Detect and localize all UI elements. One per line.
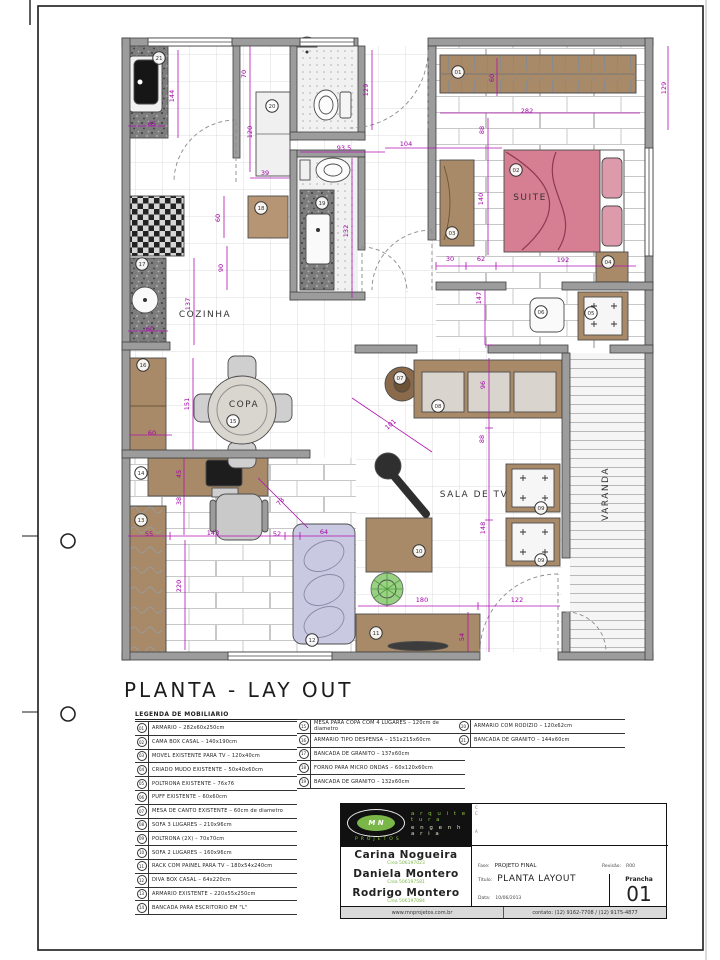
- dimension-label: 54: [458, 633, 466, 641]
- revisao-label: Revisão:: [602, 864, 621, 869]
- dimension-label: 60: [146, 325, 154, 333]
- svg-text:03: 03: [449, 231, 456, 237]
- legend-row: 04CRIADO MUDO EXISTENTE – 50x40x60cm: [135, 763, 297, 777]
- dimension-label: 180: [416, 596, 428, 604]
- logo-mark: M N: [357, 815, 395, 831]
- dimension-label: 120: [246, 126, 254, 138]
- dimension-label: 55: [145, 530, 153, 538]
- title-block: M N a r q u i t e t u r a e n g e n h a …: [340, 803, 667, 919]
- svg-text:08: 08: [435, 404, 442, 410]
- dimension-label: 148: [479, 522, 487, 534]
- room-label: SALA DE TV: [440, 490, 508, 500]
- legend-row: 11RACK COM PAINEL PARA TV – 180x54x240cm: [135, 860, 297, 874]
- author: Carina Nogueira Crea 506197023: [341, 849, 471, 866]
- dimension-label: 151: [183, 398, 191, 410]
- logo-sub: PROJETOS: [355, 837, 402, 842]
- legend-row: 02CAMA BOX CASAL – 140x190cm: [135, 736, 297, 750]
- dimension-label: 64: [320, 528, 328, 536]
- legend-row: 09POLTRONA (2X) – 70x70cm: [135, 832, 297, 846]
- legend-row: 16ARMARIO TIPO DESPENSA – 151x215x60cm: [297, 734, 465, 748]
- item-marker: 01: [452, 66, 464, 78]
- item-marker: 18: [255, 202, 267, 214]
- footer-bar: www.mnprojetos.com.br contato: (12) 9162…: [341, 906, 666, 918]
- item-marker: 03: [446, 227, 458, 239]
- titulo-label: Título:: [478, 878, 492, 883]
- legend-row: 01ARMARIO – 282x60x250cm: [135, 722, 297, 736]
- legend-row: 20ARMARIO COM RODIZIO – 120x62cm: [457, 720, 625, 734]
- window: [228, 652, 332, 660]
- shelf-13: [126, 506, 166, 656]
- svg-text:16: 16: [140, 363, 147, 369]
- tv-unit-10: [366, 518, 432, 572]
- item-marker: 09: [535, 502, 547, 514]
- item-marker: 20: [266, 100, 278, 112]
- toilet-bath2: [300, 158, 350, 182]
- binder-hole: [61, 707, 75, 721]
- dimension-label: 220: [175, 580, 183, 592]
- item-marker: 16: [137, 359, 149, 371]
- item-marker: 05: [585, 307, 597, 319]
- item-marker: 08: [432, 400, 444, 412]
- client-line: A: [475, 830, 668, 834]
- item-marker: 06: [535, 306, 547, 318]
- svg-text:15: 15: [230, 419, 237, 425]
- cabinet-18: [248, 196, 288, 238]
- author: Rodrigo Montero Crea 506197084: [341, 887, 471, 904]
- dimension-label: 45: [175, 470, 183, 478]
- item-marker: 19: [316, 197, 328, 209]
- sheet-number-box: Prancha 01: [609, 874, 668, 908]
- svg-text:14: 14: [138, 471, 145, 477]
- dimension-label: 132: [342, 225, 350, 237]
- legend-row: 18FORNO PARA MICRO ONDAS – 60x120x60cm: [297, 761, 465, 775]
- fields: Fase: PROJETO FINAL Revisão: R00 Título:…: [471, 846, 668, 908]
- armchair-09b: [506, 518, 560, 566]
- svg-text:09: 09: [538, 558, 545, 564]
- item-marker: 04: [602, 256, 614, 268]
- svg-text:17: 17: [139, 262, 146, 268]
- closet-01: [440, 55, 636, 93]
- logo-ellipse: M N: [347, 809, 405, 837]
- room-label: VARANDA: [601, 467, 611, 521]
- revisao-value: R00: [626, 864, 635, 869]
- svg-text:05: 05: [588, 311, 595, 317]
- binder-hole: [61, 534, 75, 548]
- dimension-label: 104: [400, 140, 412, 148]
- legend-column-1: LEGENDA DE MOBILIARIO 01ARMARIO – 282x60…: [135, 711, 297, 915]
- window: [645, 148, 653, 256]
- svg-text:07: 07: [397, 376, 404, 382]
- svg-text:11: 11: [373, 631, 380, 637]
- titulo-value: PLANTA LAYOUT: [497, 874, 576, 884]
- dimension-label: 137: [184, 298, 192, 310]
- item-marker: 07: [394, 372, 406, 384]
- contact: contato: (12) 9162-7708 / (12) 9175-4877: [503, 907, 666, 918]
- author: Daniela Montero Crea 506197581: [341, 868, 471, 885]
- authors: Carina Nogueira Crea 506197023 Daniela M…: [341, 846, 471, 908]
- svg-text:02: 02: [513, 168, 520, 174]
- svg-text:18: 18: [258, 206, 265, 212]
- client-box: C C A: [471, 804, 668, 846]
- client-line: C: [475, 812, 668, 816]
- legend-row: 05POLTRONA EXISTENTE – 76x76: [135, 777, 297, 791]
- svg-text:09: 09: [538, 506, 545, 512]
- logo-line2: e n g e n h a r i a: [411, 825, 471, 837]
- item-marker: 13: [135, 514, 147, 526]
- item-marker: 11: [370, 627, 382, 639]
- legend-list-2: 15MESA PARA COPA COM 4 LUGARES – 120cm d…: [297, 719, 465, 789]
- room-label: COZINHA: [179, 310, 231, 320]
- dimension-label: 122: [511, 596, 523, 604]
- dimension-label: 96: [479, 381, 487, 389]
- dimension-label: 144: [168, 90, 176, 102]
- window: [300, 38, 354, 46]
- pantry-cabinet-16: [126, 358, 166, 454]
- svg-text:10: 10: [416, 549, 423, 555]
- dimension-label: 90: [217, 264, 225, 272]
- svg-text:01: 01: [455, 70, 462, 76]
- dimension-label: 147: [475, 292, 483, 304]
- dimension-label: 93.5: [337, 144, 351, 152]
- legend-row: 13ARMARIO EXISTENTE – 220x55x250cm: [135, 888, 297, 902]
- legend-column-2: 15MESA PARA COPA COM 4 LUGARES – 120cm d…: [297, 719, 465, 789]
- legend-row: 19BANCADA DE GRANITO – 132x60cm: [297, 775, 465, 789]
- dimension-label: 30: [446, 255, 454, 263]
- svg-text:12: 12: [309, 638, 316, 644]
- dimension-label: 129: [362, 84, 370, 96]
- dimension-label: 88: [478, 435, 486, 443]
- svg-text:20: 20: [269, 104, 276, 110]
- dimension-label: 88: [478, 126, 486, 134]
- room-label: SUITE: [513, 193, 547, 203]
- dimension-label: 52: [273, 530, 281, 538]
- dimension-label: 65: [148, 120, 156, 128]
- svg-text:13: 13: [138, 518, 145, 524]
- svg-text:19: 19: [319, 201, 326, 207]
- legend-row: 06PUFF EXISTENTE – 60x60cm: [135, 791, 297, 805]
- item-marker: 02: [510, 164, 522, 176]
- dimension-label: 62: [477, 255, 485, 263]
- dimension-label: 38: [175, 497, 183, 505]
- legend-row: 10SOFA 2 LUGARES – 160x96cm: [135, 846, 297, 860]
- legend-row: 15MESA PARA COPA COM 4 LUGARES – 120cm d…: [297, 720, 465, 734]
- room-label: COPA: [229, 400, 259, 410]
- dimension-label: 129: [660, 82, 668, 94]
- item-marker: 17: [136, 258, 148, 270]
- legend-title: LEGENDA DE MOBILIARIO: [135, 711, 297, 720]
- item-marker: 14: [135, 467, 147, 479]
- dimension-label: 60: [488, 74, 496, 82]
- legend-row: 17BANCADA DE GRANITO – 137x60cm: [297, 748, 465, 762]
- sheet: 144657012012912993.510428288601403062192…: [0, 0, 720, 960]
- chaise-12: [293, 524, 355, 644]
- legend-row: 08SOFA 3 LUGARES – 210x96cm: [135, 819, 297, 833]
- client-line: C: [475, 806, 668, 810]
- legend-column-3: 20ARMARIO COM RODIZIO – 120x62cm21BANCAD…: [457, 719, 625, 748]
- dimension-label: 140: [477, 193, 485, 205]
- legend-row: 21BANCADA DE GRANITO – 144x60cm: [457, 734, 625, 748]
- website: www.mnprojetos.com.br: [341, 907, 503, 918]
- armchair-09a: [506, 464, 560, 512]
- logo-line1: a r q u i t e t u r a: [411, 811, 471, 823]
- legend-row: 12DIVA BOX CASAL – 64x220cm: [135, 874, 297, 888]
- prancha-value: 01: [610, 883, 668, 905]
- svg-text:04: 04: [605, 260, 612, 266]
- stove-17: [124, 196, 184, 256]
- dimension-label: 282: [521, 107, 533, 115]
- item-marker: 15: [227, 415, 239, 427]
- toilet-bath1: [314, 90, 351, 120]
- page-title: PLANTA - LAY OUT: [124, 678, 353, 702]
- svg-text:21: 21: [156, 56, 163, 62]
- item-marker: 10: [413, 545, 425, 557]
- dimension-label: 60: [214, 214, 222, 222]
- company-logo: M N a r q u i t e t u r a e n g e n h a …: [341, 804, 471, 846]
- legend-row: 03MOVEL EXISTENTE PARA TV – 120x40cm: [135, 750, 297, 764]
- legend-list-1: 01ARMARIO – 282x60x250cm02CAMA BOX CASAL…: [135, 721, 297, 915]
- item-marker: 09: [535, 554, 547, 566]
- window: [148, 38, 232, 46]
- dimension-label: 143: [207, 529, 219, 537]
- item-marker: 12: [306, 634, 318, 646]
- dimension-label: 60: [148, 429, 156, 437]
- dimension-label: 39: [261, 169, 269, 177]
- legend-row: 07MESA DE CANTO EXISTENTE – 60cm de diam…: [135, 805, 297, 819]
- dimension-label: 70: [240, 70, 248, 78]
- legend-row: 14BANCADA PARA ESCRITORIO EM "L": [135, 901, 297, 915]
- legend-list-3: 20ARMARIO COM RODIZIO – 120x62cm21BANCAD…: [457, 719, 625, 748]
- svg-text:06: 06: [538, 310, 545, 316]
- dimension-label: 192: [557, 256, 569, 264]
- item-marker: 21: [153, 52, 165, 64]
